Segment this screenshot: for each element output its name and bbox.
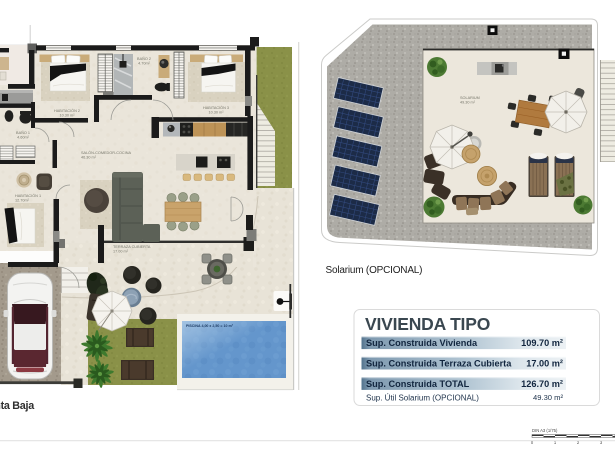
svg-text:49.30 m²: 49.30 m² bbox=[533, 393, 563, 402]
svg-text:Sup. Útil Solarium (OPCIONAL): Sup. Útil Solarium (OPCIONAL) bbox=[366, 394, 479, 403]
svg-text:PISCINA 4,00 x 2,50 = 10 m²: PISCINA 4,00 x 2,50 = 10 m² bbox=[186, 324, 234, 328]
svg-text:HABITACIÓN 3: HABITACIÓN 3 bbox=[203, 105, 229, 110]
svg-text:46.30 m²: 46.30 m² bbox=[81, 156, 97, 160]
svg-text:Sup. Construida Terraza Cubier: Sup. Construida Terraza Cubierta bbox=[366, 358, 512, 368]
svg-text:DIN A3 (1/75): DIN A3 (1/75) bbox=[532, 428, 558, 433]
svg-text:4.70m²: 4.70m² bbox=[138, 62, 151, 66]
svg-text:4.60m²: 4.60m² bbox=[17, 136, 30, 140]
svg-text:VIVIENDA TIPO: VIVIENDA TIPO bbox=[365, 314, 490, 334]
svg-text:HABITACIÓN 1: HABITACIÓN 1 bbox=[15, 193, 41, 198]
svg-text:126.70 m²: 126.70 m² bbox=[521, 379, 563, 389]
svg-text:HABITACIÓN 2: HABITACIÓN 2 bbox=[54, 108, 80, 113]
svg-text:SALÓN-COMEDOR-COCINA: SALÓN-COMEDOR-COCINA bbox=[81, 150, 131, 155]
svg-text:TERRAZA CUBIERTA: TERRAZA CUBIERTA bbox=[113, 245, 151, 249]
svg-text:17.00 m²: 17.00 m² bbox=[526, 358, 563, 368]
svg-text:17.00 m²: 17.00 m² bbox=[113, 250, 129, 254]
svg-text:BAÑO 2: BAÑO 2 bbox=[137, 56, 151, 61]
svg-text:SOLARIUM: SOLARIUM bbox=[460, 96, 480, 100]
svg-text:Sup. Construida Vivienda: Sup. Construida Vivienda bbox=[366, 338, 478, 348]
svg-text:49.30 m²: 49.30 m² bbox=[460, 101, 476, 105]
svg-text:109.70 m²: 109.70 m² bbox=[521, 338, 563, 348]
svg-text:10.30 m²: 10.30 m² bbox=[60, 114, 76, 118]
svg-text:12.70m²: 12.70m² bbox=[15, 199, 30, 203]
svg-text:10.30 m²: 10.30 m² bbox=[209, 111, 225, 115]
svg-text:BAÑO 1: BAÑO 1 bbox=[16, 130, 30, 135]
svg-text:Solarium (OPCIONAL): Solarium (OPCIONAL) bbox=[326, 265, 423, 276]
svg-text:Sup. Construida TOTAL: Sup. Construida TOTAL bbox=[366, 379, 470, 389]
svg-text:Planta Baja: Planta Baja bbox=[0, 400, 35, 412]
